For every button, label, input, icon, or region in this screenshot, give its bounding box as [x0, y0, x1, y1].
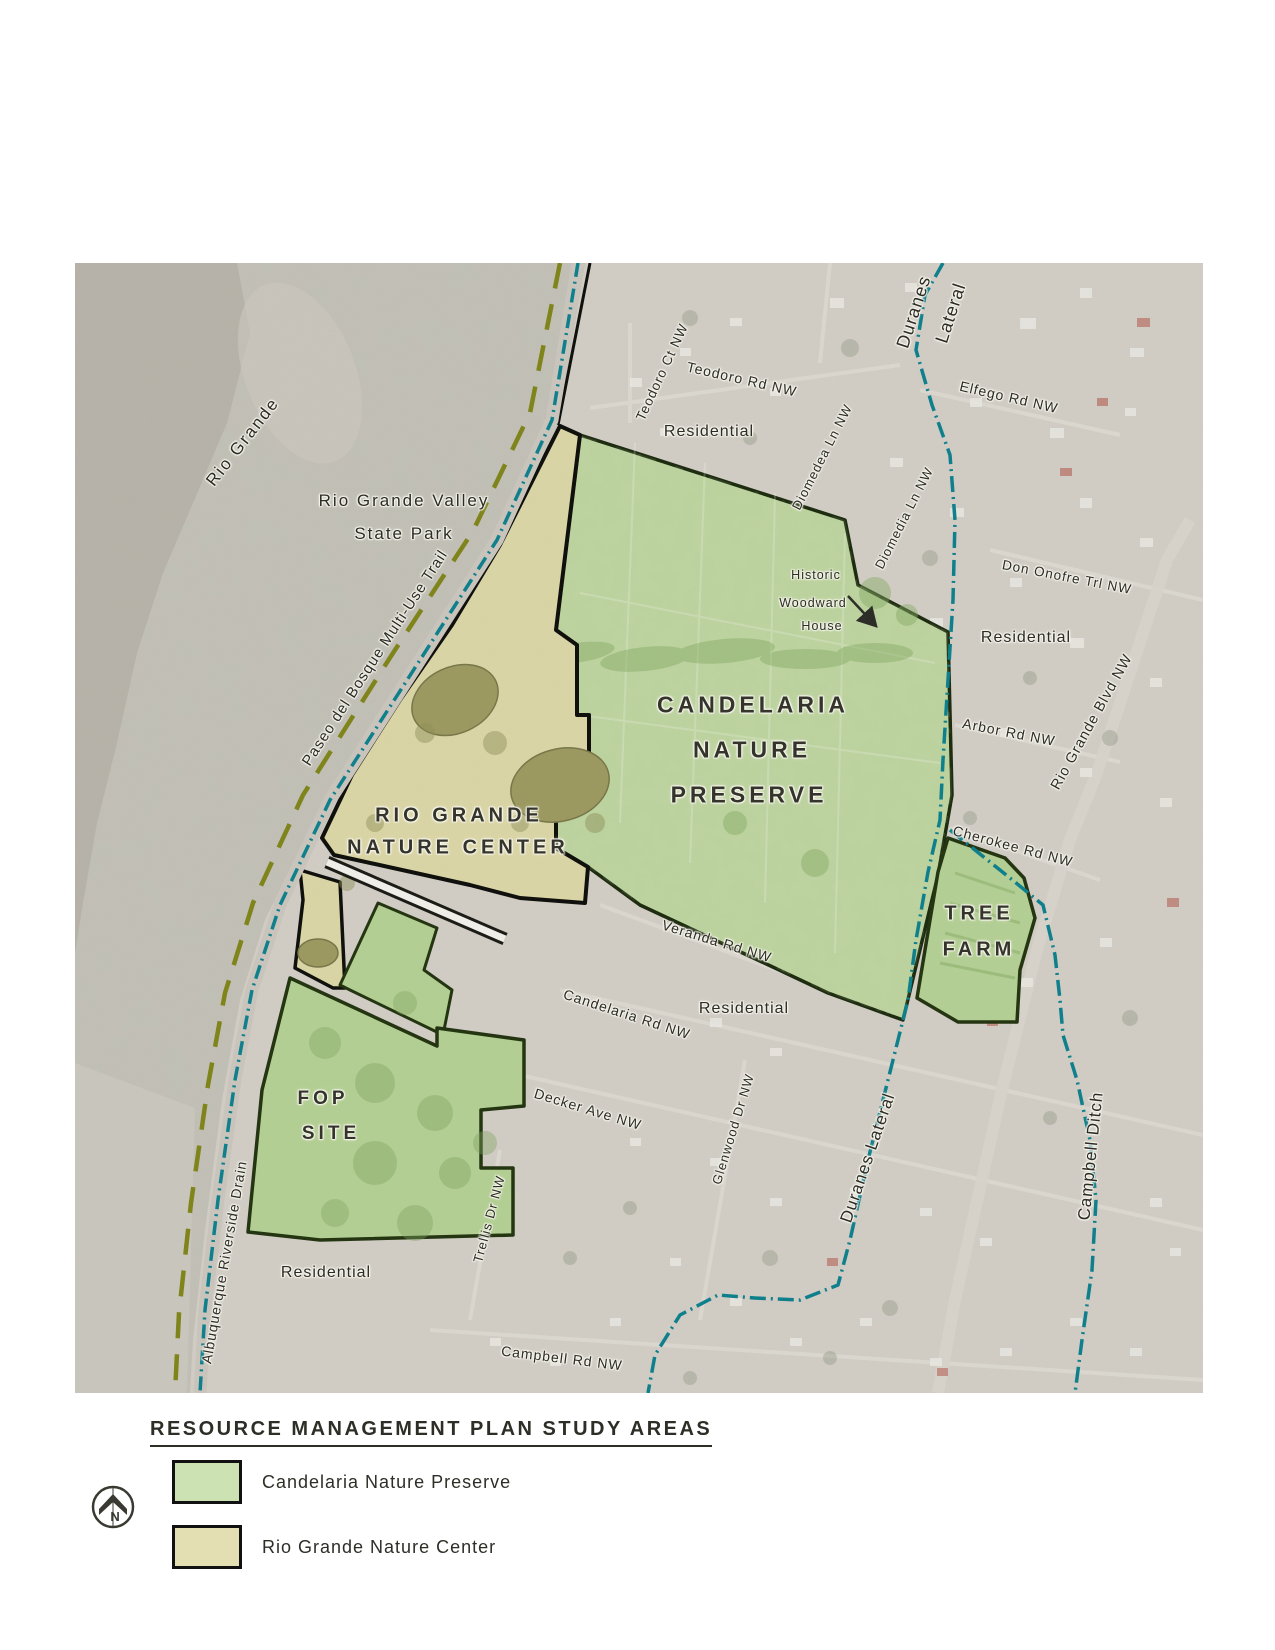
map-label-residential-mid: Residential — [699, 1000, 789, 1018]
legend-item-nature-center: Rio Grande Nature Center — [172, 1525, 496, 1569]
map-label-state-park-2: State Park — [354, 524, 453, 544]
map-label-state-park-1: Rio Grande Valley — [319, 491, 490, 511]
map-label-fop-1: FOP — [297, 1088, 348, 1110]
legend: RESOURCE MANAGEMENT PLAN STUDY AREAS Can… — [150, 1418, 712, 1447]
map-label-nature-center-1: RIO GRANDE — [375, 805, 543, 828]
legend-item-preserve: Candelaria Nature Preserve — [172, 1460, 511, 1504]
map-label-historic-1: Historic — [791, 568, 841, 582]
legend-swatch-preserve — [172, 1460, 242, 1504]
map-label-residential-south: Residential — [281, 1264, 371, 1282]
legend-label-preserve: Candelaria Nature Preserve — [262, 1472, 511, 1493]
map-label-nature-center-2: NATURE CENTER — [347, 837, 569, 860]
north-arrow-icon: N — [89, 1483, 137, 1531]
north-arrow-label: N — [110, 1509, 119, 1524]
map-label-residential-east: Residential — [981, 629, 1071, 647]
map-label-residential-north: Residential — [664, 423, 754, 441]
legend-title: RESOURCE MANAGEMENT PLAN STUDY AREAS — [150, 1418, 712, 1447]
map-label-preserve-2: NATURE — [693, 737, 811, 764]
legend-label-nature-center: Rio Grande Nature Center — [262, 1537, 496, 1558]
map-label-historic-2: Woodward — [779, 596, 847, 610]
map-label-preserve-1: CANDELARIA — [657, 692, 849, 719]
map-label-tree-farm-2: FARM — [943, 939, 1016, 962]
map-label-fop-2: SITE — [302, 1123, 360, 1145]
map-label-tree-farm-1: TREE — [944, 903, 1013, 926]
map-label-preserve-3: PRESERVE — [671, 782, 828, 809]
map-label-historic-3: House — [801, 619, 842, 633]
legend-swatch-nature-center — [172, 1525, 242, 1569]
map-document-page: Rio Grande Rio Grande Valley State Park … — [0, 0, 1275, 1650]
